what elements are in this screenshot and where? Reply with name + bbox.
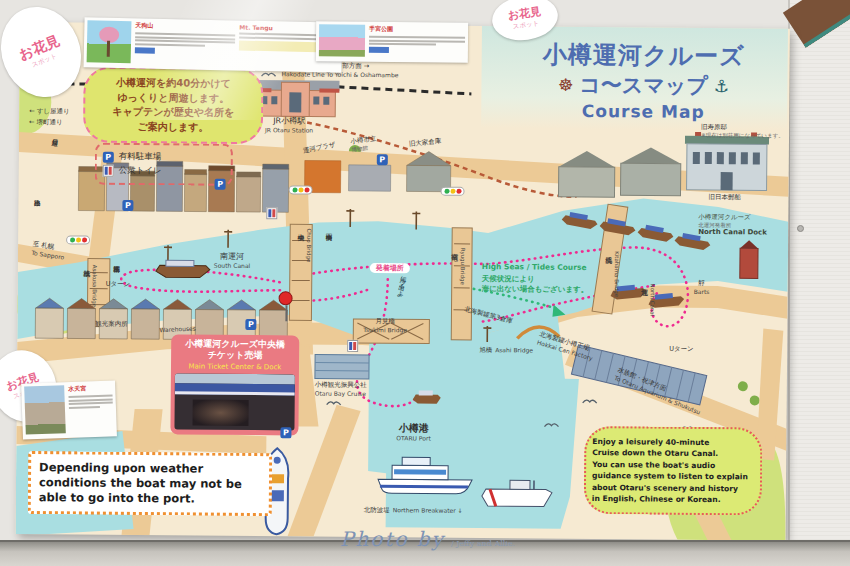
info-line: guidance system to listen to explain <box>592 470 754 483</box>
ticket-center-english: Main Ticket Center & Dock <box>175 362 295 371</box>
wall-screw <box>797 225 804 232</box>
card-column: 手宮公園 <box>369 25 465 60</box>
hanami-card-left: 水天宮 <box>21 380 117 439</box>
parking-icon: P <box>103 151 114 162</box>
card-title: 天狗山 <box>135 21 235 32</box>
map-title-line2-text: コ〜スマップ <box>579 71 708 100</box>
course-map-poster: 小樽運河クルーズ ☸ コ〜スマップ ⚓ Course Map 小樽運河を約40分… <box>16 22 790 541</box>
intro-speech-bubble: 小樽運河を約40分かけて ゆっくりと周遊します。 キャプテンが歴史や名所を ご案… <box>83 67 264 145</box>
ship-wheel-icon: ☸ <box>558 75 573 95</box>
map-title: 小樽運河クルーズ ☸ コ〜スマップ ⚓ Course Map <box>499 38 788 123</box>
hokkai-can-factory-building <box>571 345 706 405</box>
toilet-icon <box>103 165 114 177</box>
ticket-center-line2: チケット売場 <box>175 350 295 362</box>
intro-line: 小樽運河を約40分かけて <box>91 76 255 92</box>
bay-cruise-building <box>315 355 369 379</box>
watermark-main: Photo by <box>340 527 445 551</box>
intro-line: ご案内します。 <box>91 119 255 135</box>
info-line: in English, Chinese or Korean. <box>592 493 754 506</box>
card-column: 水天宮 <box>68 383 114 435</box>
card-blue-chip <box>369 47 389 53</box>
watermark-sub: / Jeffy and Allie. <box>451 539 515 548</box>
intro-line: キャプテンが歴史や名所を <box>91 105 255 121</box>
legend-toilet-label: 公衆トイレ <box>119 165 162 177</box>
jr-station-building <box>251 80 339 117</box>
card-blue-chip <box>135 47 155 53</box>
photo-of-map-poster: 小樽運河クルーズ ☸ コ〜スマップ ⚓ Course Map 小樽運河を約40分… <box>0 0 850 566</box>
card-title: 水天宮 <box>68 383 112 394</box>
map-title-line2: ☸ コ〜スマップ ⚓ <box>499 70 787 101</box>
map-legend: P 有料駐車場 公衆トイレ <box>95 143 233 186</box>
weather-notice-box: Depending upon weather conditions the bo… <box>28 451 273 516</box>
ticket-center-line1: 小樽運河クルーズ中央橋 <box>175 338 295 350</box>
map-title-line1: 小樽運河クルーズ <box>500 38 788 73</box>
hanami-card-small: 手宮公園 <box>316 21 468 62</box>
map-title-english: Course Map <box>499 100 787 123</box>
whiteboard-wall <box>788 0 850 566</box>
ticket-center-box: 小樽運河クルーズ中央橋 チケット売場 Main Ticket Center & … <box>170 334 299 435</box>
photo-watermark: Photo by / Jeffy and Allie. <box>340 527 515 551</box>
legend-parking-label: 有料駐車場 <box>119 151 162 163</box>
legend-parking-row: P 有料駐車場 <box>103 151 225 164</box>
ticket-center-photo <box>174 373 294 430</box>
intro-line: ゆっくりと周遊します。 <box>91 90 255 106</box>
legend-toilet-row: 公衆トイレ <box>103 165 225 178</box>
hanami-card-wide: 天狗山 Mt. Tengu <box>84 17 343 72</box>
english-info-bubble: Enjoy a leisurely 40-minute Cruise down … <box>584 426 763 516</box>
card-column-jp: 天狗山 <box>135 21 236 67</box>
anchor-icon: ⚓ <box>714 76 729 96</box>
card-photo-temiya <box>319 24 365 56</box>
card-photo-tengu <box>87 20 132 63</box>
card-photo-suitengu <box>24 385 66 434</box>
card-title: 手宮公園 <box>369 25 465 35</box>
nippon-yusen-building <box>685 132 770 191</box>
